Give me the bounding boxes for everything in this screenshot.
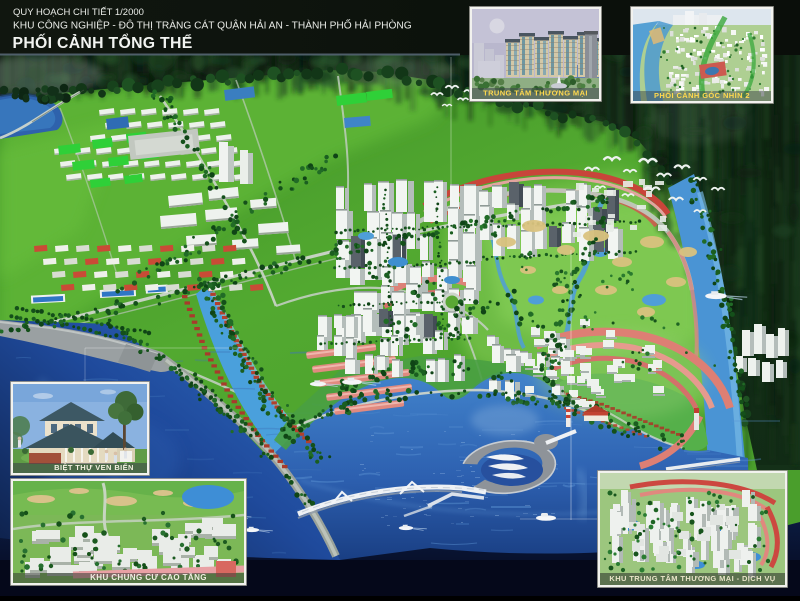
svg-text:BIỆT THỰ VEN BIỂN: BIỆT THỰ VEN BIỂN — [54, 463, 134, 472]
svg-text:KHU CÔNG NGHIỆP - ĐÔ THỊ TRÀNG: KHU CÔNG NGHIỆP - ĐÔ THỊ TRÀNG CÁT QUẬN … — [13, 18, 412, 32]
svg-text:TRUNG TÂM THƯƠNG MẠI: TRUNG TÂM THƯƠNG MẠI — [483, 89, 588, 98]
svg-text:PHỐI CẢNH GÓC NHÌN 2: PHỐI CẢNH GÓC NHÌN 2 — [654, 90, 750, 100]
svg-text:KHU CHUNG CƯ CAO TẦNG: KHU CHUNG CƯ CAO TẦNG — [90, 572, 207, 582]
svg-text:QUY HOẠCH CHI TIẾT 1/2000: QUY HOẠCH CHI TIẾT 1/2000 — [13, 7, 144, 18]
svg-text:KHU TRUNG TÂM THƯƠNG MẠI - DỊC: KHU TRUNG TÂM THƯƠNG MẠI - DỊCH VỤ — [609, 574, 775, 583]
svg-text:PHỐI CẢNH TỔNG THỂ: PHỐI CẢNH TỔNG THỂ — [13, 32, 193, 52]
